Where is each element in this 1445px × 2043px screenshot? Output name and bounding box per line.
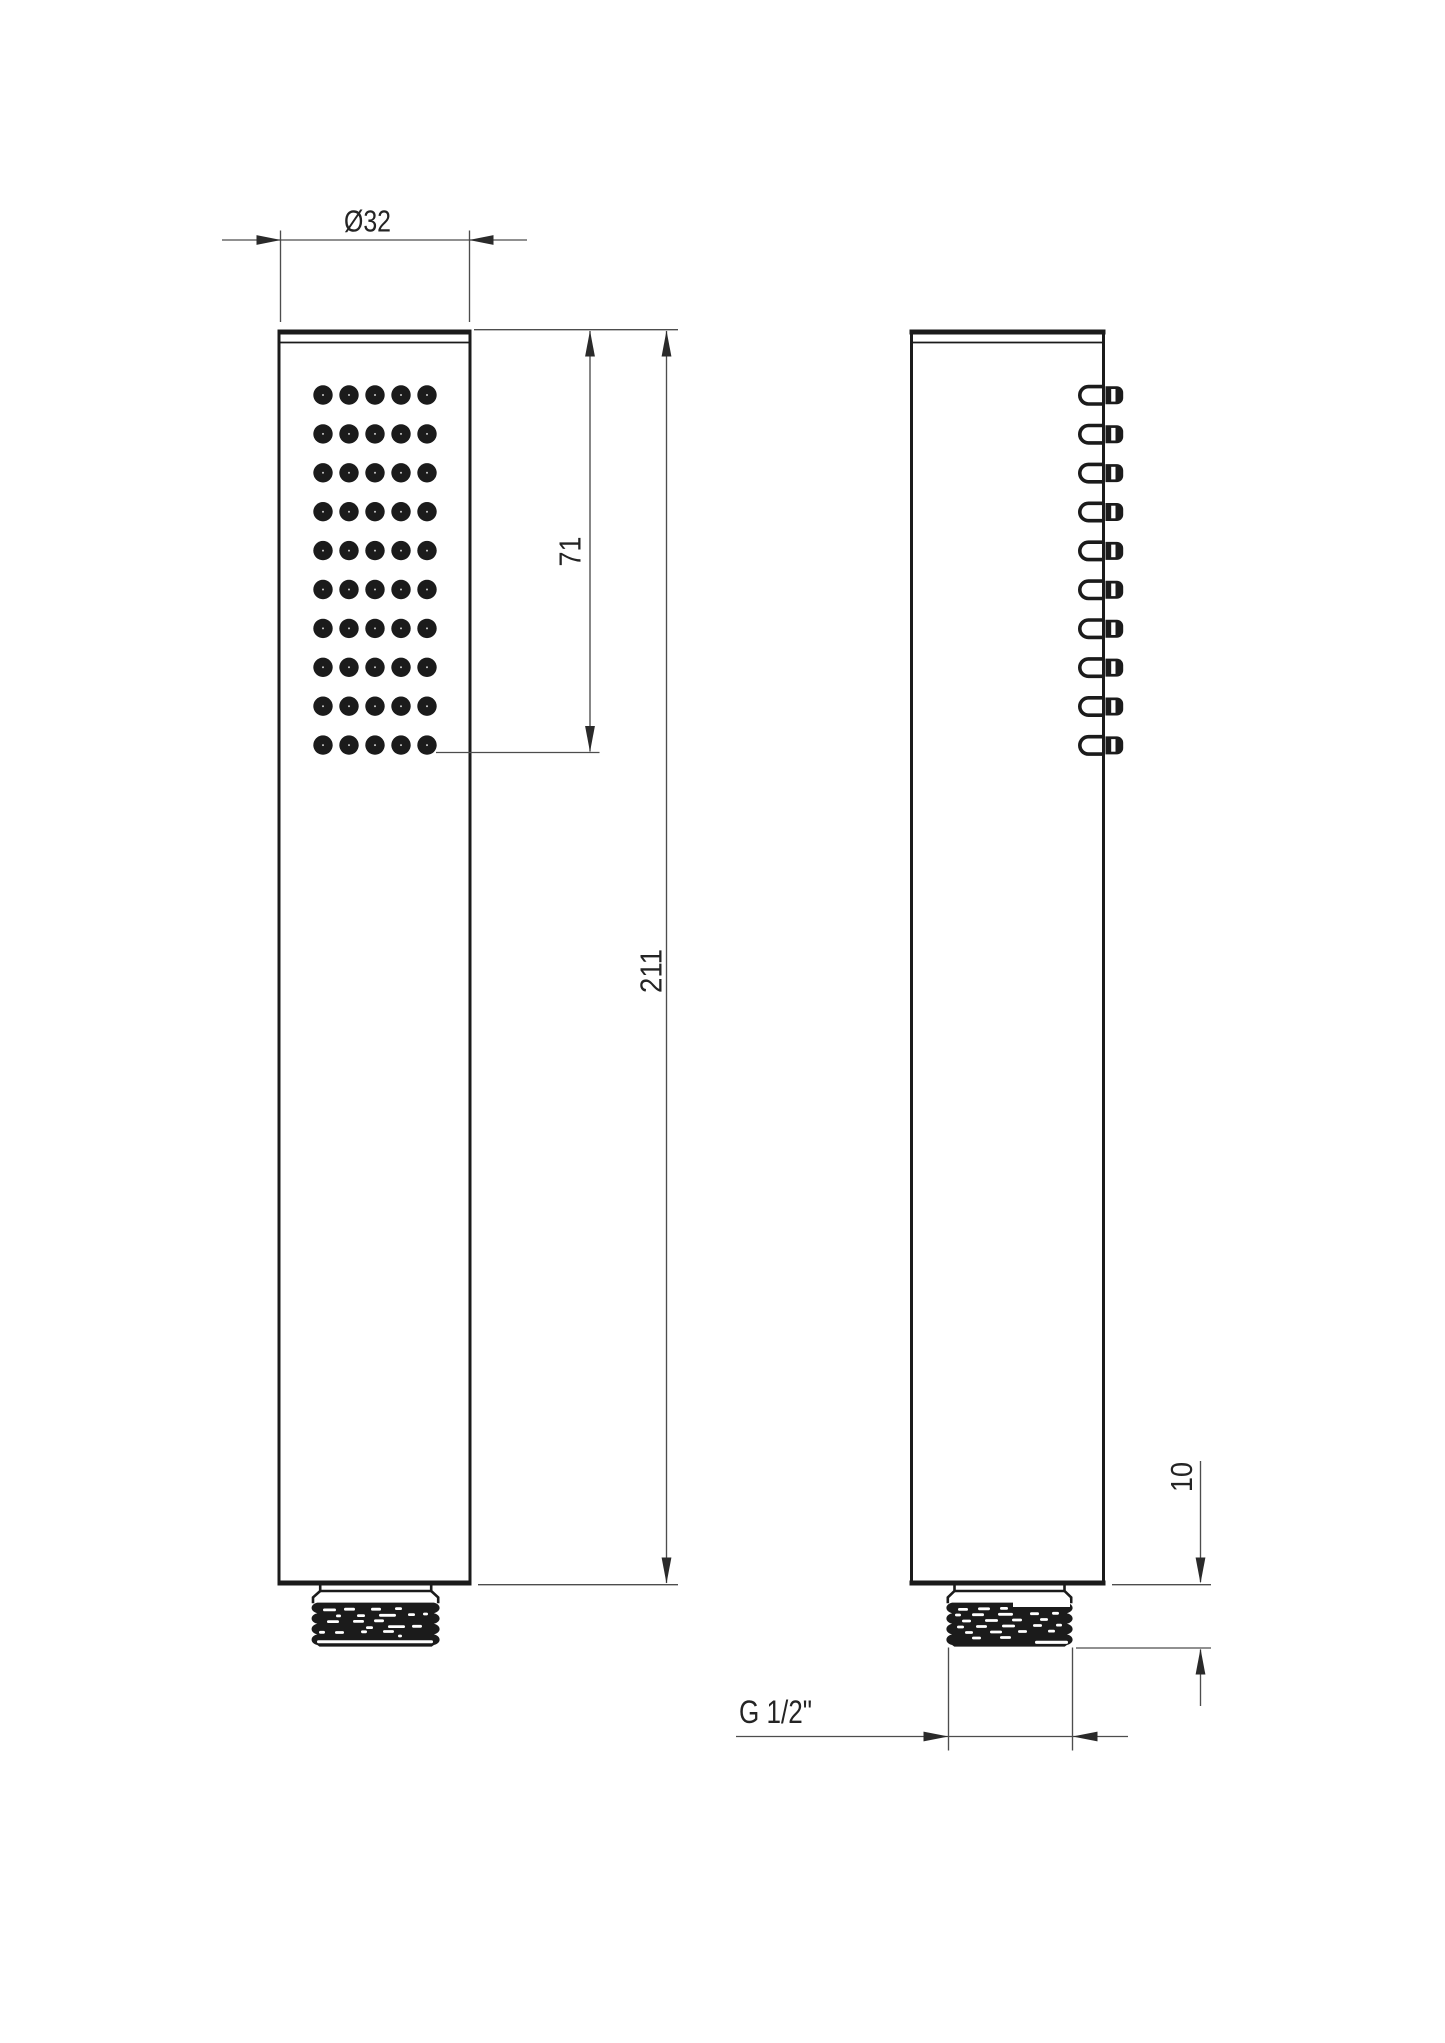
svg-text:211: 211 [634,949,669,993]
svg-text:71: 71 [553,537,588,567]
svg-text:Ø32: Ø32 [344,204,391,239]
svg-text:10: 10 [1164,1462,1199,1492]
svg-text:G 1/2": G 1/2" [739,1694,812,1730]
